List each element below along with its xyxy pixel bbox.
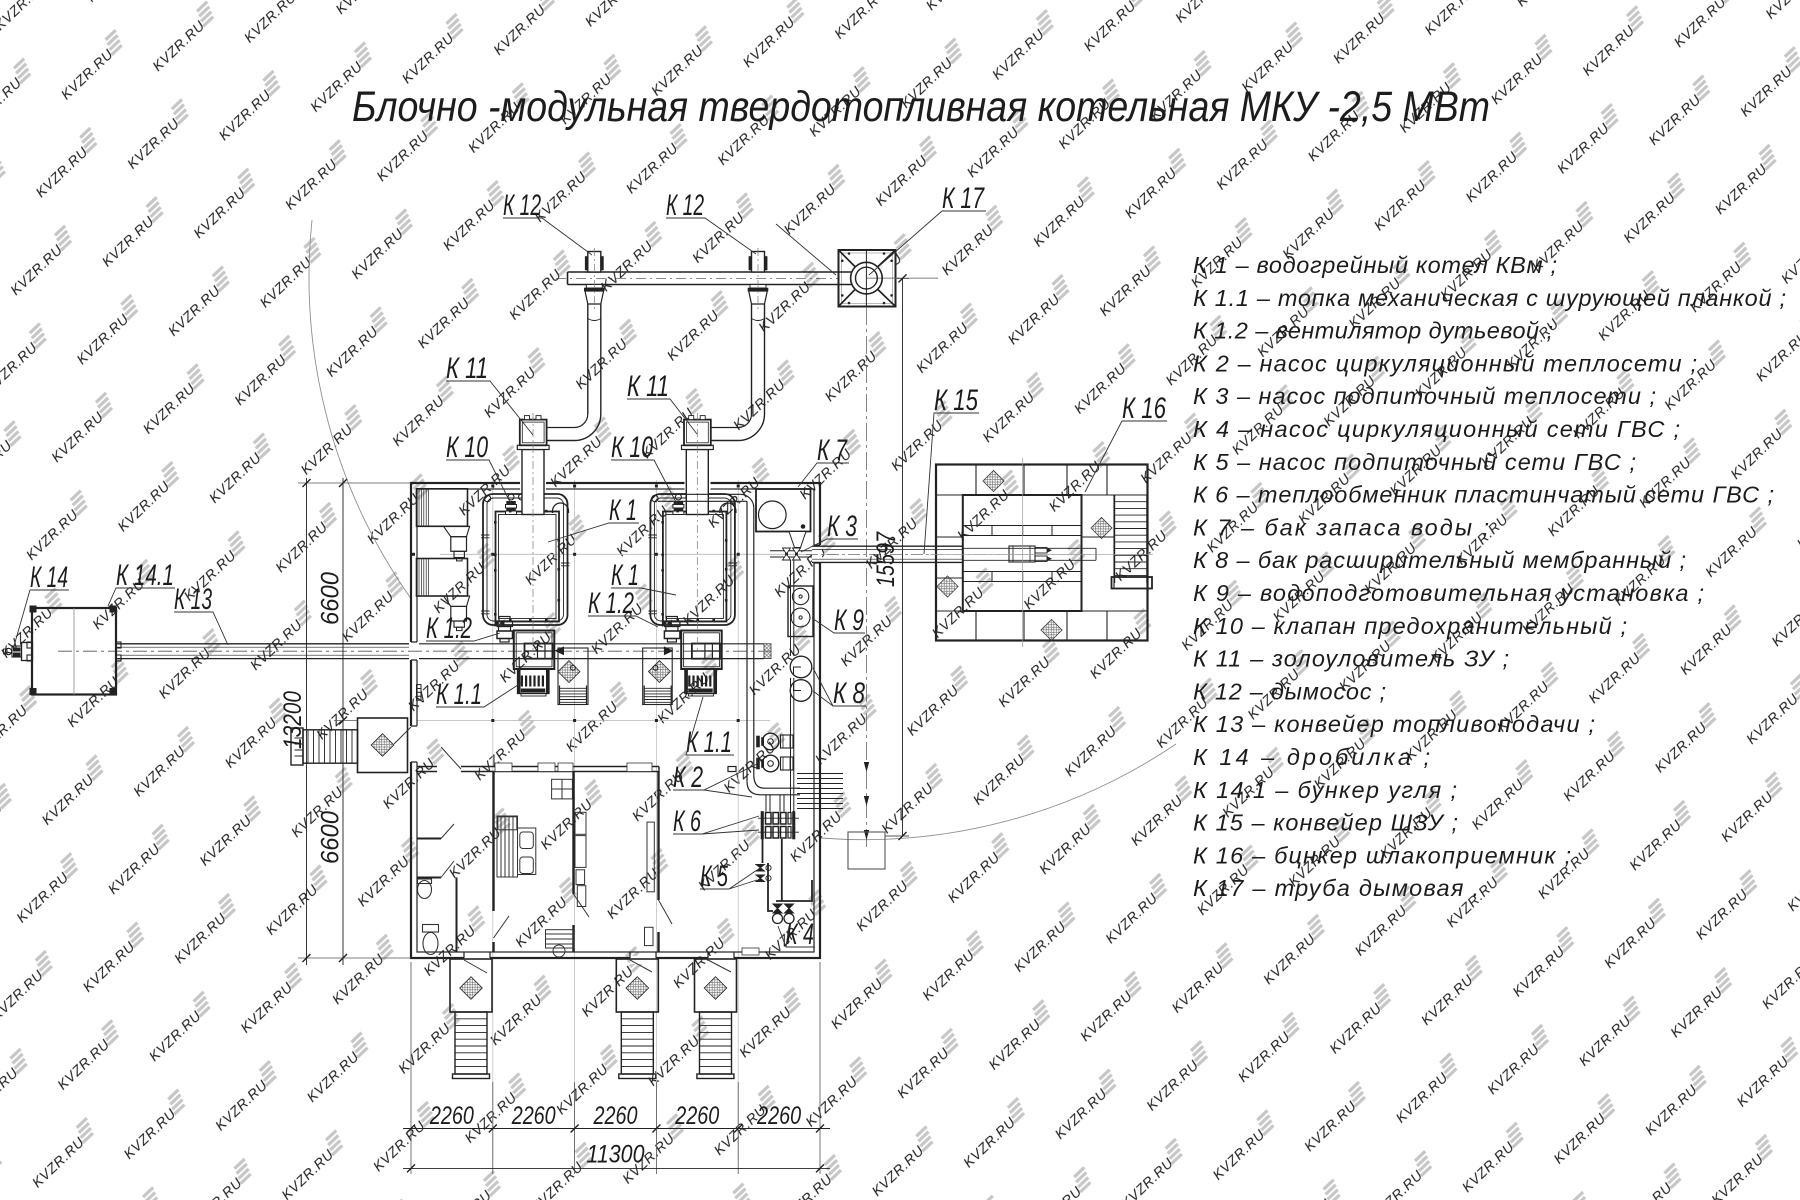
svg-text:К 12: К 12 [666,189,704,222]
svg-text:К 11: К 11 [446,352,488,385]
svg-text:2260: 2260 [593,1102,638,1130]
svg-text:К 3 – насос подпиточный тепло: К 3 – насос подпиточный теплосети ; [1193,383,1656,409]
svg-text:К 15 – конвейер ШЗУ ;: К 15 – конвейер ШЗУ ; [1193,810,1458,836]
svg-text:К 7: К 7 [817,434,848,467]
svg-text:Блочно -модульная твердотоплив: Блочно -модульная твердотопливная котель… [352,83,1490,131]
svg-text:К 17: К 17 [942,182,985,215]
svg-text:К 8 – бак расширительный мемб: К 8 – бак расширительный мембранный ; [1193,547,1686,573]
svg-text:К 16 – бцнкер шлакоприемник ;: К 16 – бцнкер шлакоприемник ; [1193,842,1571,868]
svg-text:К 14 – дробилка ;: К 14 – дробилка ; [1193,744,1430,770]
svg-text:К 1 – водогрейный котел КВм ;: К 1 – водогрейный котел КВм ; [1193,252,1557,278]
svg-text:К 9 – водоподготовительная ус: К 9 – водоподготовительная установка ; [1193,580,1704,606]
svg-text:11300: 11300 [587,1141,645,1169]
svg-text:К 10: К 10 [446,431,488,464]
svg-text:6600: 6600 [317,811,345,864]
svg-text:К 14: К 14 [30,561,68,594]
svg-text:К 10 – клапан предохранительн: К 10 – клапан предохранительный ; [1193,613,1627,639]
svg-text:К 1.2: К 1.2 [426,612,472,645]
svg-text:13200: 13200 [279,691,307,749]
svg-text:6600: 6600 [317,572,345,625]
svg-text:К 1.1: К 1.1 [436,678,482,711]
svg-text:К 4: К 4 [786,918,814,951]
svg-text:К 6 – теплообменник пластинча: К 6 – теплообменник пластинчатый сети ГВ… [1193,482,1774,508]
svg-text:К 17 – труба дымовая .: К 17 – труба дымовая . [1193,875,1479,901]
svg-text:2260: 2260 [429,1102,474,1130]
svg-text:К 2: К 2 [673,761,703,794]
svg-text:К 7 – бак запаса воды ;: К 7 – бак запаса воды ; [1193,514,1489,540]
svg-text:К 1.2 – вентилятор дутьевой ;: К 1.2 – вентилятор дутьевой ; [1193,318,1553,344]
svg-text:К 11 – золоуловитель ЗУ ;: К 11 – золоуловитель ЗУ ; [1193,646,1509,672]
svg-text:К 8: К 8 [833,677,865,710]
svg-text:К 14.1: К 14.1 [116,559,174,592]
svg-text:К 12: К 12 [503,189,541,222]
svg-text:К 9: К 9 [834,604,864,637]
svg-text:К 15: К 15 [934,384,978,417]
svg-text:К 4 – насос циркуляционный се: К 4 – насос циркуляционный сети ГВС ; [1193,416,1680,442]
svg-text:К 3: К 3 [827,510,857,543]
svg-text:К 5: К 5 [700,860,728,893]
svg-text:2260: 2260 [756,1102,801,1130]
svg-text:К 1.2: К 1.2 [588,587,634,620]
svg-text:К 6: К 6 [673,805,701,838]
svg-text:К 14.1 – бункер угля ;: К 14.1 – бункер угля ; [1193,777,1457,803]
svg-text:2260: 2260 [511,1102,556,1130]
svg-text:К 13: К 13 [174,583,212,616]
svg-text:К 16: К 16 [1122,392,1166,425]
svg-text:К 10: К 10 [611,431,653,464]
svg-text:К 1: К 1 [609,494,637,527]
svg-text:К 12 – дымосос ;: К 12 – дымосос ; [1193,678,1386,704]
svg-text:К 2 – насос циркуляционный те: К 2 – насос циркуляционный теплосети ; [1193,350,1697,376]
svg-text:К 1.1 – топка механическая с: К 1.1 – топка механическая с шурующей пл… [1193,285,1786,311]
svg-text:2260: 2260 [675,1102,720,1130]
svg-text:К 5 – насос подпиточный сети: К 5 – насос подпиточный сети ГВС ; [1193,449,1636,475]
svg-text:К 11: К 11 [627,370,669,403]
svg-text:К 13 – конвейер топливоподачи: К 13 – конвейер топливоподачи ; [1193,711,1595,737]
